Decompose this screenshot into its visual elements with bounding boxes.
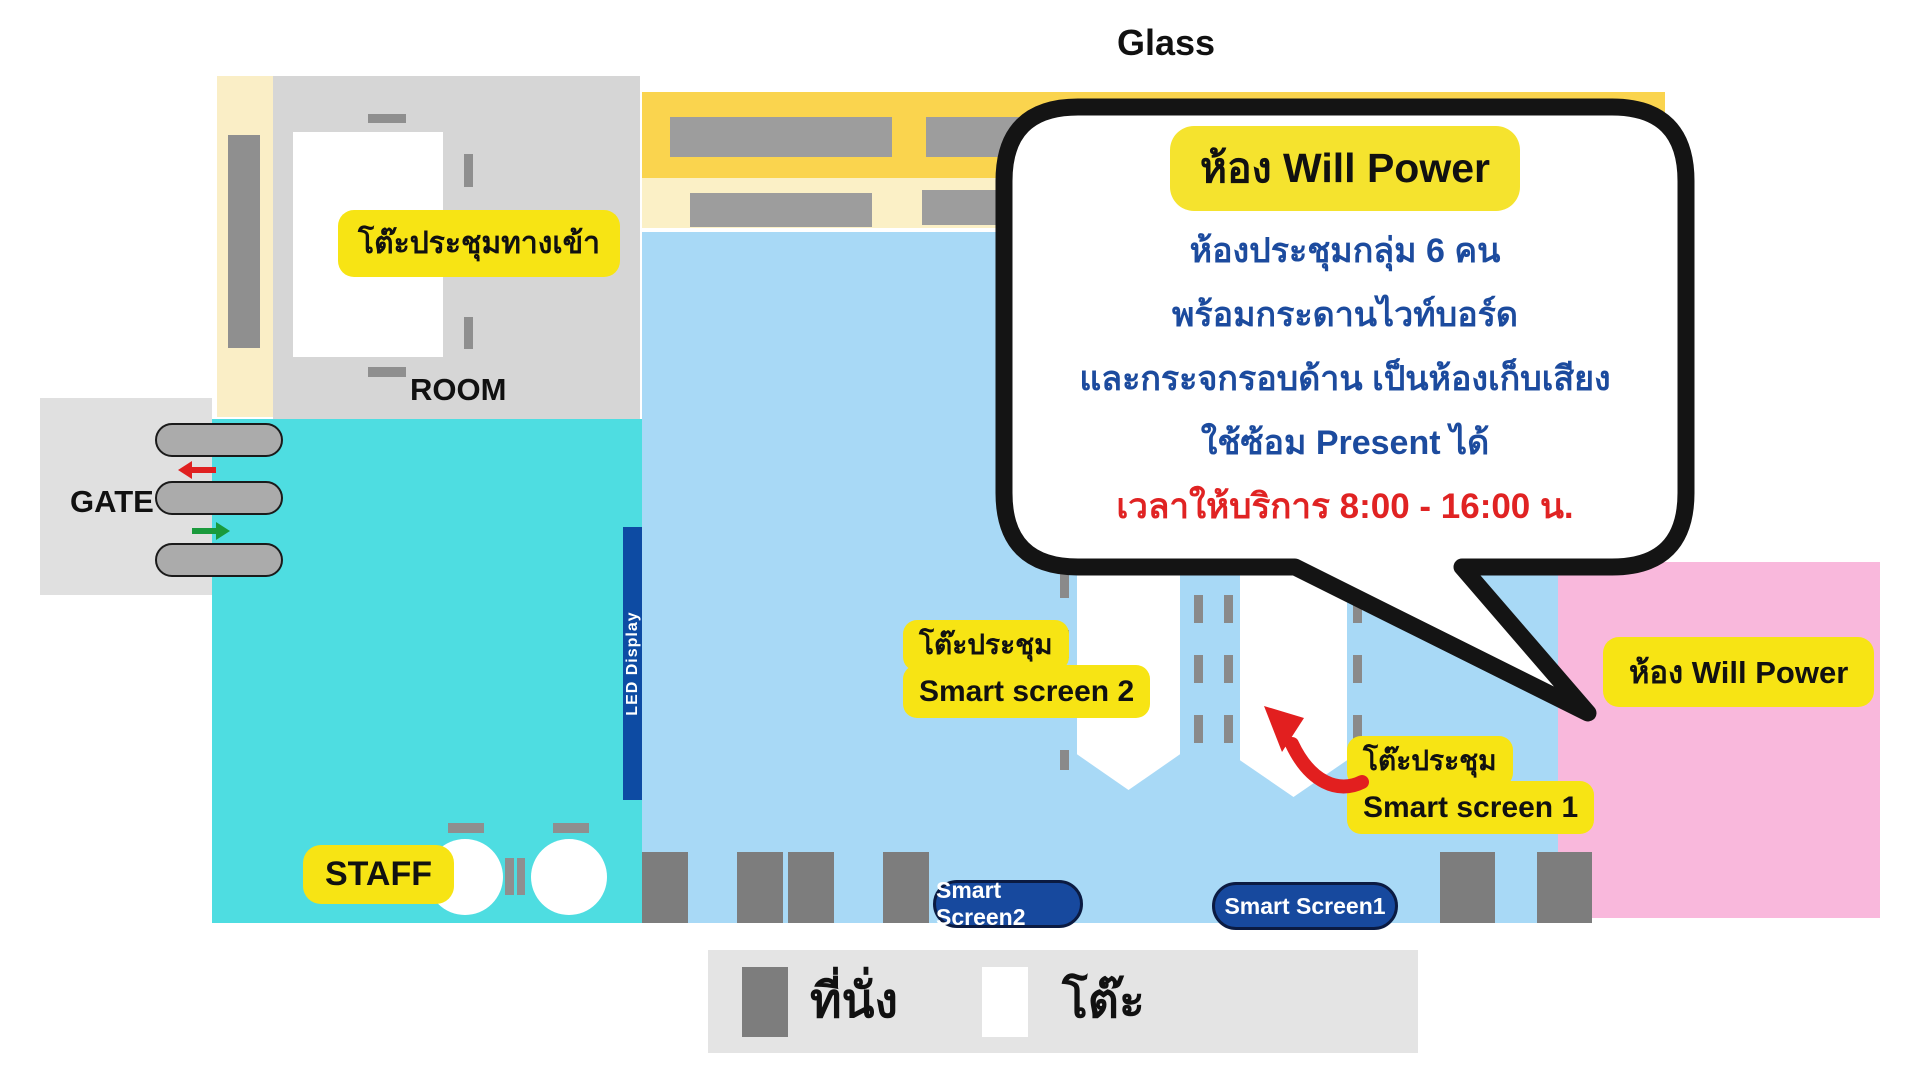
seat-marker bbox=[788, 852, 834, 923]
glass-table bbox=[670, 117, 892, 157]
glass-label: Glass bbox=[1117, 22, 1215, 64]
gate-label: GATE bbox=[70, 484, 154, 520]
callout-title: ห้อง Will Power bbox=[1170, 126, 1520, 211]
staff-desk-circle bbox=[531, 839, 607, 915]
turnstile bbox=[155, 543, 283, 577]
callout-line: และกระจกรอบด้าน เป็นห้องเก็บเสียง bbox=[1004, 347, 1686, 411]
seat-marker bbox=[737, 852, 783, 923]
callout-content: ห้อง Will Power ห้องประชุมกลุ่ม 6 คน พร้… bbox=[1004, 112, 1686, 539]
led-display-label: LED Display bbox=[623, 527, 642, 800]
turnstile bbox=[155, 423, 283, 457]
staff-chair-marker bbox=[448, 823, 484, 833]
floor-plan: LED Display Smart Screen2 Smart Screen1 … bbox=[0, 0, 1920, 1080]
staff-chair-marker bbox=[553, 823, 589, 833]
smart-screen1-pill-label: Smart Screen1 bbox=[1224, 893, 1385, 920]
smart-screen2-pill-label: Smart Screen2 bbox=[936, 877, 1080, 931]
smart-screen1-pill: Smart Screen1 bbox=[1212, 882, 1398, 930]
legend-seat-label: ที่นั่ง bbox=[810, 967, 898, 1037]
staff-divider bbox=[517, 858, 525, 895]
seat-marker bbox=[1537, 852, 1592, 923]
callout-line: ห้องประชุมกลุ่ม 6 คน bbox=[1004, 219, 1686, 283]
legend-seat-swatch bbox=[742, 967, 788, 1037]
turnstile bbox=[155, 481, 283, 515]
staff-label: STAFF bbox=[303, 845, 454, 904]
room-chair-marker bbox=[464, 154, 473, 187]
seat-marker bbox=[883, 852, 929, 923]
smart-screen-1-label: โต๊ะประชุม Smart screen 1 bbox=[1347, 736, 1594, 834]
smart-screen-1-label-line2: Smart screen 1 bbox=[1347, 781, 1594, 834]
glass-table bbox=[690, 193, 872, 227]
led-display-bar: LED Display bbox=[623, 527, 642, 800]
room-label: ROOM bbox=[410, 372, 506, 408]
entrance-table-label: โต๊ะประชุมทางเข้า bbox=[338, 210, 620, 277]
seat-marker bbox=[1440, 852, 1495, 923]
callout-service-time: เวลาให้บริการ 8:00 - 16:00 น. bbox=[1004, 475, 1686, 539]
room-chair-marker bbox=[368, 367, 406, 377]
exit-arrow-icon bbox=[178, 460, 218, 480]
legend-table-swatch bbox=[982, 967, 1028, 1037]
callout-line: พร้อมกระดานไวท์บอร์ด bbox=[1004, 283, 1686, 347]
smart-screen2-pill: Smart Screen2 bbox=[933, 880, 1083, 928]
room-chair-marker bbox=[464, 317, 473, 349]
entry-arrow-icon bbox=[190, 521, 230, 541]
room-chair-marker bbox=[368, 114, 406, 123]
legend-table-label: โต๊ะ bbox=[1062, 967, 1145, 1037]
staff-divider bbox=[505, 858, 514, 895]
seat-marker bbox=[642, 852, 688, 923]
callout-line: ใช้ซ้อม Present ได้ bbox=[1004, 411, 1686, 475]
entrance-wall-bar bbox=[228, 135, 260, 348]
